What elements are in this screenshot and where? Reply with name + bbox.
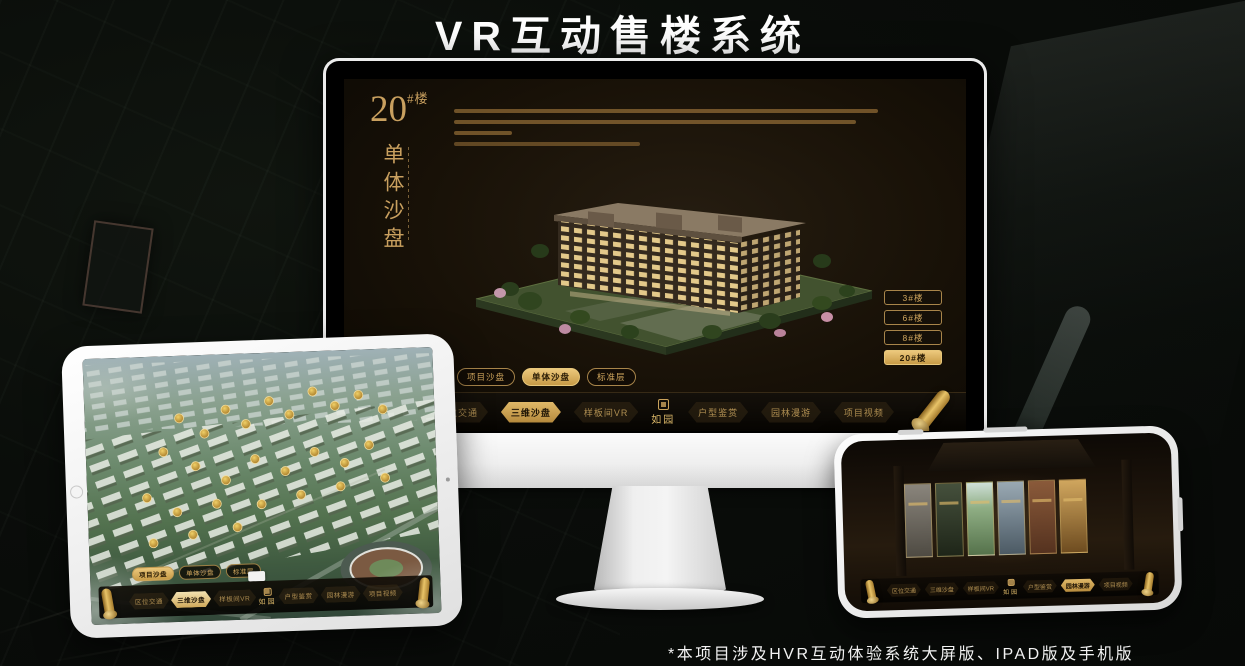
menu-item-3d-sandtable-selected[interactable]: 三维沙盘 bbox=[501, 402, 561, 423]
phone-device: 区位交通 三维沙盘 样板间VR 如园 户型鉴赏 园林漫游 项目视频 bbox=[833, 425, 1182, 619]
phone-menu-item-3d-sandtable[interactable]: 三维沙盘 bbox=[925, 582, 959, 596]
phone-power-button[interactable] bbox=[1177, 497, 1183, 531]
ipad-project-logo[interactable]: 如园 bbox=[258, 587, 277, 607]
phone-project-logo[interactable]: 如园 bbox=[1003, 578, 1019, 595]
ipad-menu-item-model-room-vr[interactable]: 样板间VR bbox=[213, 589, 257, 606]
menu-item-project-video[interactable]: 项目视频 bbox=[834, 402, 894, 423]
phone-menu-item-location-traffic[interactable]: 区位交通 bbox=[887, 583, 921, 597]
view-tab-group: 项目沙盘 单体沙盘 标准层 bbox=[457, 368, 636, 386]
description-line bbox=[454, 131, 512, 135]
phone-menu-item-project-video[interactable]: 项目视频 bbox=[1099, 577, 1133, 591]
ipad-device: 项目沙盘 单体沙盘 标准层 区位交通 三维沙盘 样板间VR 如园 户型鉴赏 园林… bbox=[61, 333, 463, 639]
ipad-screen: 项目沙盘 单体沙盘 标准层 区位交通 三维沙盘 样板间VR 如园 户型鉴赏 园林… bbox=[82, 347, 441, 625]
ipad-menu-item-garden-roam[interactable]: 园林漫游 bbox=[320, 586, 361, 603]
description-line bbox=[454, 109, 878, 113]
floor-button-6[interactable]: 6#楼 bbox=[884, 310, 942, 325]
building-3d-model-viewport[interactable] bbox=[470, 151, 880, 381]
floor-button-8[interactable]: 8#楼 bbox=[884, 330, 942, 345]
scene-panel-garden[interactable] bbox=[966, 481, 995, 556]
tab-single-sandtable-selected[interactable]: 单体沙盘 bbox=[522, 368, 580, 386]
phone-screen: 区位交通 三维沙盘 样板间VR 如园 户型鉴赏 园林漫游 项目视频 bbox=[841, 432, 1176, 611]
phone-menu-item-model-room-vr[interactable]: 样板间VR bbox=[963, 581, 1000, 595]
project-logo[interactable]: 如园 bbox=[651, 399, 675, 426]
phone-menu-item-garden-roam-selected[interactable]: 园林漫游 bbox=[1061, 578, 1095, 592]
poster-stage: VR互动售楼系统 20#楼 单体沙盘 bbox=[0, 0, 1245, 666]
description-line bbox=[454, 120, 856, 124]
building-number-title: 20#楼 bbox=[370, 91, 429, 128]
ipad-menu-item-location-traffic[interactable]: 区位交通 bbox=[129, 592, 170, 609]
logo-seal-icon bbox=[1007, 578, 1014, 585]
scene-panel-gallery bbox=[904, 479, 1088, 558]
floor-button-3[interactable]: 3#楼 bbox=[884, 290, 942, 305]
ipad-tab-single-sandtable[interactable]: 单体沙盘 bbox=[179, 564, 221, 579]
scene-panel-interior[interactable] bbox=[904, 483, 933, 558]
scroll-handle-icon bbox=[417, 577, 430, 606]
ipad-menu-item-project-video[interactable]: 项目视频 bbox=[363, 584, 404, 601]
logo-text: 如园 bbox=[651, 411, 675, 426]
scene-panel-building[interactable] bbox=[997, 481, 1026, 556]
description-line bbox=[454, 142, 640, 146]
scroll-handle-icon bbox=[1143, 572, 1154, 595]
menu-item-floorplan-appreciation[interactable]: 户型鉴赏 bbox=[688, 402, 748, 423]
floor-button-20-selected[interactable]: 20#楼 bbox=[884, 350, 942, 365]
building-type-label: 单体沙盘 bbox=[378, 143, 408, 255]
scene-panel-hall[interactable] bbox=[935, 482, 964, 557]
monitor-stand bbox=[594, 486, 726, 596]
logo-text: 如园 bbox=[258, 596, 276, 607]
logo-seal-icon bbox=[263, 587, 271, 595]
ipad-menu-item-floorplan-appreciation[interactable]: 户型鉴赏 bbox=[278, 587, 319, 604]
ipad-camera-icon bbox=[446, 477, 450, 481]
phone-volume-button[interactable] bbox=[897, 429, 923, 435]
menu-item-model-room-vr[interactable]: 样板间VR bbox=[574, 402, 639, 423]
phone-menu-item-floorplan-appreciation[interactable]: 户型鉴赏 bbox=[1023, 579, 1057, 593]
ipad-home-button[interactable] bbox=[70, 485, 83, 498]
logo-text: 如园 bbox=[1003, 586, 1019, 595]
menu-item-garden-roam[interactable]: 园林漫游 bbox=[761, 402, 821, 423]
building-number-suffix: #楼 bbox=[407, 91, 429, 106]
footer-note: *本项目涉及HVR互动体验系统大屏版、IPAD版及手机版 bbox=[668, 640, 1134, 664]
background-award-plaque bbox=[82, 220, 153, 314]
scene-panel-study[interactable] bbox=[1059, 479, 1088, 554]
tab-project-sandtable[interactable]: 项目沙盘 bbox=[457, 368, 515, 386]
ipad-tab-project-sandtable-selected[interactable]: 项目沙盘 bbox=[132, 566, 174, 581]
monitor-base bbox=[556, 588, 764, 610]
scene-panel-autumn[interactable] bbox=[1028, 480, 1057, 555]
ipad-menu-item-3d-sandtable-selected[interactable]: 三维沙盘 bbox=[171, 591, 212, 608]
floor-button-group: 3#楼 6#楼 8#楼 20#楼 bbox=[884, 290, 942, 365]
pavilion-roof bbox=[927, 439, 1096, 472]
pavilion-column bbox=[1121, 460, 1134, 570]
logo-seal-icon bbox=[658, 399, 669, 410]
tab-standard-floor[interactable]: 标准层 bbox=[587, 368, 636, 386]
description-text-lines bbox=[454, 109, 894, 153]
page-title: VR互动售楼系统 bbox=[0, 2, 1245, 62]
map-tooltip bbox=[248, 571, 265, 582]
phone-volume-button[interactable] bbox=[983, 426, 1027, 432]
